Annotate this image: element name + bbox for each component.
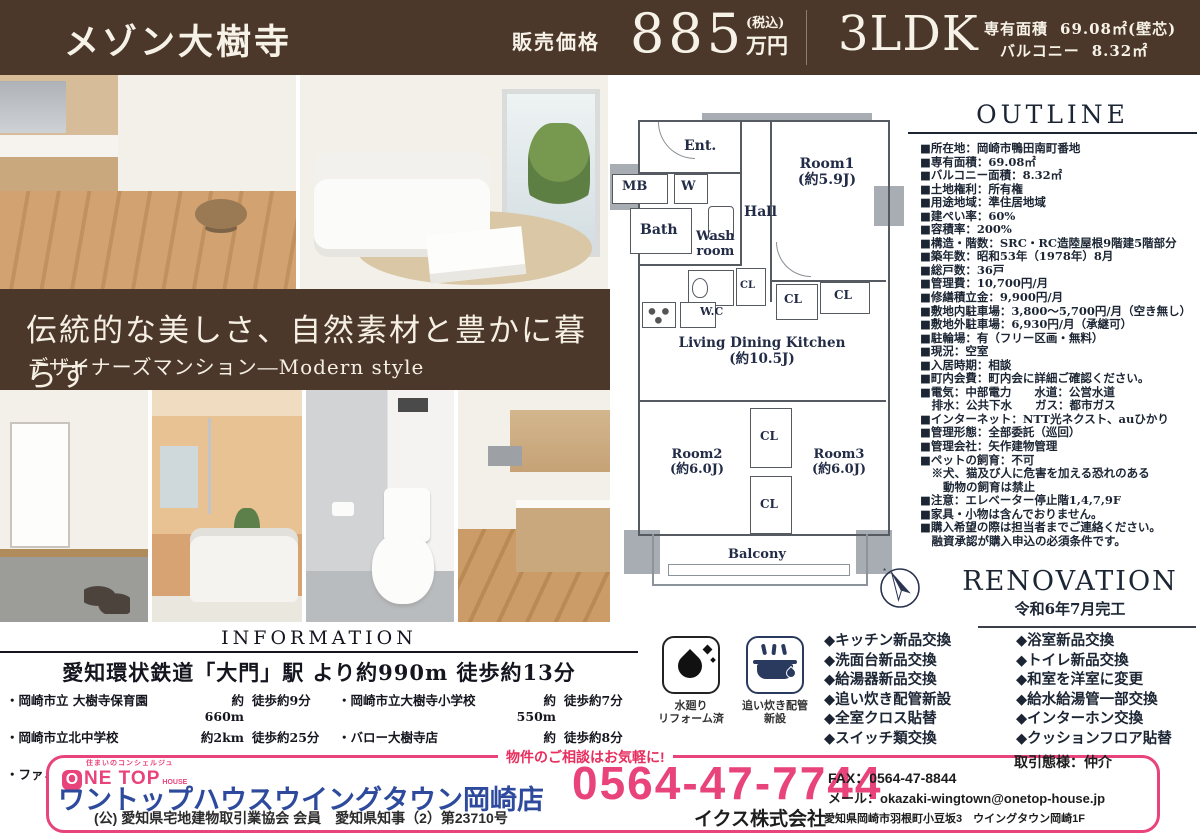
deal-type: 取引態様：仲介 xyxy=(1014,752,1112,772)
license-number: (公) 愛知県宅地建物取引業協会 会員 愛知県知事（2）第23710号 xyxy=(94,808,508,828)
plan-label-washer: W xyxy=(681,180,696,195)
plan-label-entrance: Ent. xyxy=(684,138,716,154)
photo-slippers xyxy=(84,584,130,614)
balcony-value: 8.32㎡ xyxy=(1092,42,1149,60)
plan-label-cl-hall: CL xyxy=(740,280,755,292)
plan-toilet-fixture xyxy=(692,278,708,298)
plan-top-wall xyxy=(702,113,872,120)
plan-label-room1: Room1 (約5.9J) xyxy=(782,156,872,188)
renovation-rule xyxy=(978,626,1196,628)
plan-label-room3: Room3 (約6.0J) xyxy=(794,448,884,478)
badge-reheating-pipe: 追い炊き配管 新設 xyxy=(736,636,814,726)
photo-kitchen2-hood xyxy=(488,446,522,466)
photo-toilet-bowl xyxy=(372,532,434,604)
price-unit: 万円 xyxy=(746,30,788,60)
plan-label-mb: MB xyxy=(622,180,647,195)
plan-balcony-rail xyxy=(668,564,850,576)
company-name: イクス株式会社 xyxy=(694,804,826,831)
header-bar: メゾン大樹寺 販売価格 885 (税込) 万円 3LDK 専有面積69.08㎡(… xyxy=(0,0,1200,75)
area-value: 69.08㎡(壁芯) xyxy=(1060,20,1176,38)
balcony-label: バルコニー xyxy=(1000,42,1080,60)
company-address: 愛知県岡崎市羽根町小豆坂3 ウイングタウン岡崎1F xyxy=(824,810,1085,826)
photo-entrance xyxy=(0,390,148,622)
photo-toilet xyxy=(306,390,454,622)
plan-label-wc: W.C xyxy=(700,306,723,319)
photo-entrance-door xyxy=(10,422,70,548)
place-distance: 約660m xyxy=(198,690,252,724)
information-rule xyxy=(0,651,638,653)
station-access: 愛知環状鉄道「大門」駅 より約990m 徒歩約13分 xyxy=(0,657,638,687)
logo-tagline: 住まいのコンシェルジュ xyxy=(86,758,187,768)
plan-label-cl-center-b: CL xyxy=(760,498,778,512)
renovation-list-right: ◆浴室新品交換 ◆トイレ新品交換 ◆和室を洋室に変更 ◆給水給湯管一部交換 ◆イ… xyxy=(1016,631,1200,748)
floor-plan: Ent. MB W Bath Wash room Hall W.C CL Roo… xyxy=(612,86,904,626)
photo-plant xyxy=(528,123,590,219)
badge-water-reform: 水廻り リフォーム済 xyxy=(652,636,730,726)
plan-label-cl-room1a: CL xyxy=(784,293,802,307)
outline-rule xyxy=(908,132,1197,134)
plan-label-cl-center-a: CL xyxy=(760,430,778,444)
badge-water-caption: 水廻り リフォーム済 xyxy=(652,700,730,726)
outline-list: ■所在地：岡崎市鴨田南町番地 ■専有面積：69.08㎡ ■バルコニー面積：8.3… xyxy=(920,142,1198,548)
photo-bathtub xyxy=(190,528,298,602)
layout-type: 3LDK xyxy=(838,6,979,62)
bathtub-icon xyxy=(746,636,804,694)
photo-kitchen xyxy=(458,390,610,622)
area-label: 専有面積 xyxy=(984,20,1048,38)
renovation-heading: RENOVATION xyxy=(960,566,1180,597)
compass-icon: * xyxy=(876,564,924,612)
photo-kitchen2-counter xyxy=(516,500,610,508)
steam-icon xyxy=(761,644,767,655)
header-divider xyxy=(806,10,807,65)
place-walk: 徒歩約9分 xyxy=(252,690,338,724)
photo-paper-holder xyxy=(332,502,354,516)
plan-stove xyxy=(642,302,676,328)
catchcopy-headline: 伝統的な美しさ、自然素材と豊かに暮らす xyxy=(26,305,610,395)
property-title: メゾン大樹寺 xyxy=(64,14,292,65)
photo-toilet-vent xyxy=(398,398,428,412)
photo-kitchen-dining xyxy=(0,75,296,289)
plan-label-room2: Room2 (約6.0J) xyxy=(652,448,742,478)
price-value: 885 xyxy=(630,2,745,65)
exclusive-area: 専有面積69.08㎡(壁芯) xyxy=(984,18,1176,39)
email-address: メール：okazaki-wingtown@onetop-house.jp xyxy=(828,788,1105,807)
plan-label-hall: Hall xyxy=(744,204,777,220)
photo-shower-bar xyxy=(208,418,211,514)
steam-icon xyxy=(771,644,776,655)
place-name: ・岡崎市立大樹寺小学校 xyxy=(338,690,508,724)
plan-label-bath: Bath xyxy=(640,222,678,238)
plan-wall-hall-left xyxy=(740,120,742,266)
fax-number: FAX：0564-47-8844 xyxy=(828,768,956,788)
price-tax-note: (税込) xyxy=(746,12,784,31)
renovation-list-left: ◆キッチン新品交換 ◆洗面台新品交換 ◆給湯器新品交換 ◆追い炊き配管新設 ◆全… xyxy=(824,631,1014,748)
plan-label-balcony: Balcony xyxy=(712,548,802,563)
sparkle-icon xyxy=(703,645,713,655)
steam-icon xyxy=(781,644,787,655)
photo-kitchen2-upper-cabinets xyxy=(510,410,610,472)
water-drop-icon xyxy=(662,636,720,694)
renovation-completed-date: 令和6年7月完工 xyxy=(960,598,1180,619)
catchcopy-subline: デザイナーズマンション―Modern style xyxy=(28,351,424,380)
place-name: ・岡崎市立 大樹寺保育園 xyxy=(6,690,198,724)
plan-label-ldk: Living Dining Kitchen (約10.5J) xyxy=(672,336,852,367)
information-heading: INFORMATION xyxy=(0,627,638,649)
photo-kitchen2-lower-cabinets xyxy=(516,508,610,572)
price-label: 販売価格 xyxy=(512,26,600,55)
balcony-area: バルコニー8.32㎡ xyxy=(1000,40,1148,61)
badge-reheat-caption: 追い炊き配管 新設 xyxy=(736,700,814,726)
plan-label-cl-room1b: CL xyxy=(834,289,852,303)
plan-label-washroom: Wash room xyxy=(696,230,735,260)
drop-shape xyxy=(673,649,707,683)
outline-heading: OUTLINE xyxy=(905,100,1200,129)
photo-range-hood xyxy=(0,81,66,133)
plan-wall-ldk-bottom xyxy=(638,400,886,402)
sparkle-icon xyxy=(710,657,716,663)
place-walk: 徒歩約7分 xyxy=(564,690,638,724)
catchcopy-banner: 伝統的な美しさ、自然素材と豊かに暮らす デザイナーズマンション―Modern s… xyxy=(0,289,610,390)
plan-wall-wash-bottom xyxy=(638,264,742,266)
photo-entrance-step xyxy=(0,549,148,557)
photo-wood-floor xyxy=(0,191,296,289)
tub-rim-shape xyxy=(753,660,797,664)
photo-bath-mirror xyxy=(160,446,198,508)
compass-north-mark: * xyxy=(883,567,886,576)
place-distance: 約550m xyxy=(508,690,564,724)
photo-coffee-table xyxy=(426,226,526,284)
photo-bath-ceiling xyxy=(152,390,302,416)
photo-bathroom xyxy=(152,390,302,622)
photo-living-room xyxy=(300,75,608,289)
